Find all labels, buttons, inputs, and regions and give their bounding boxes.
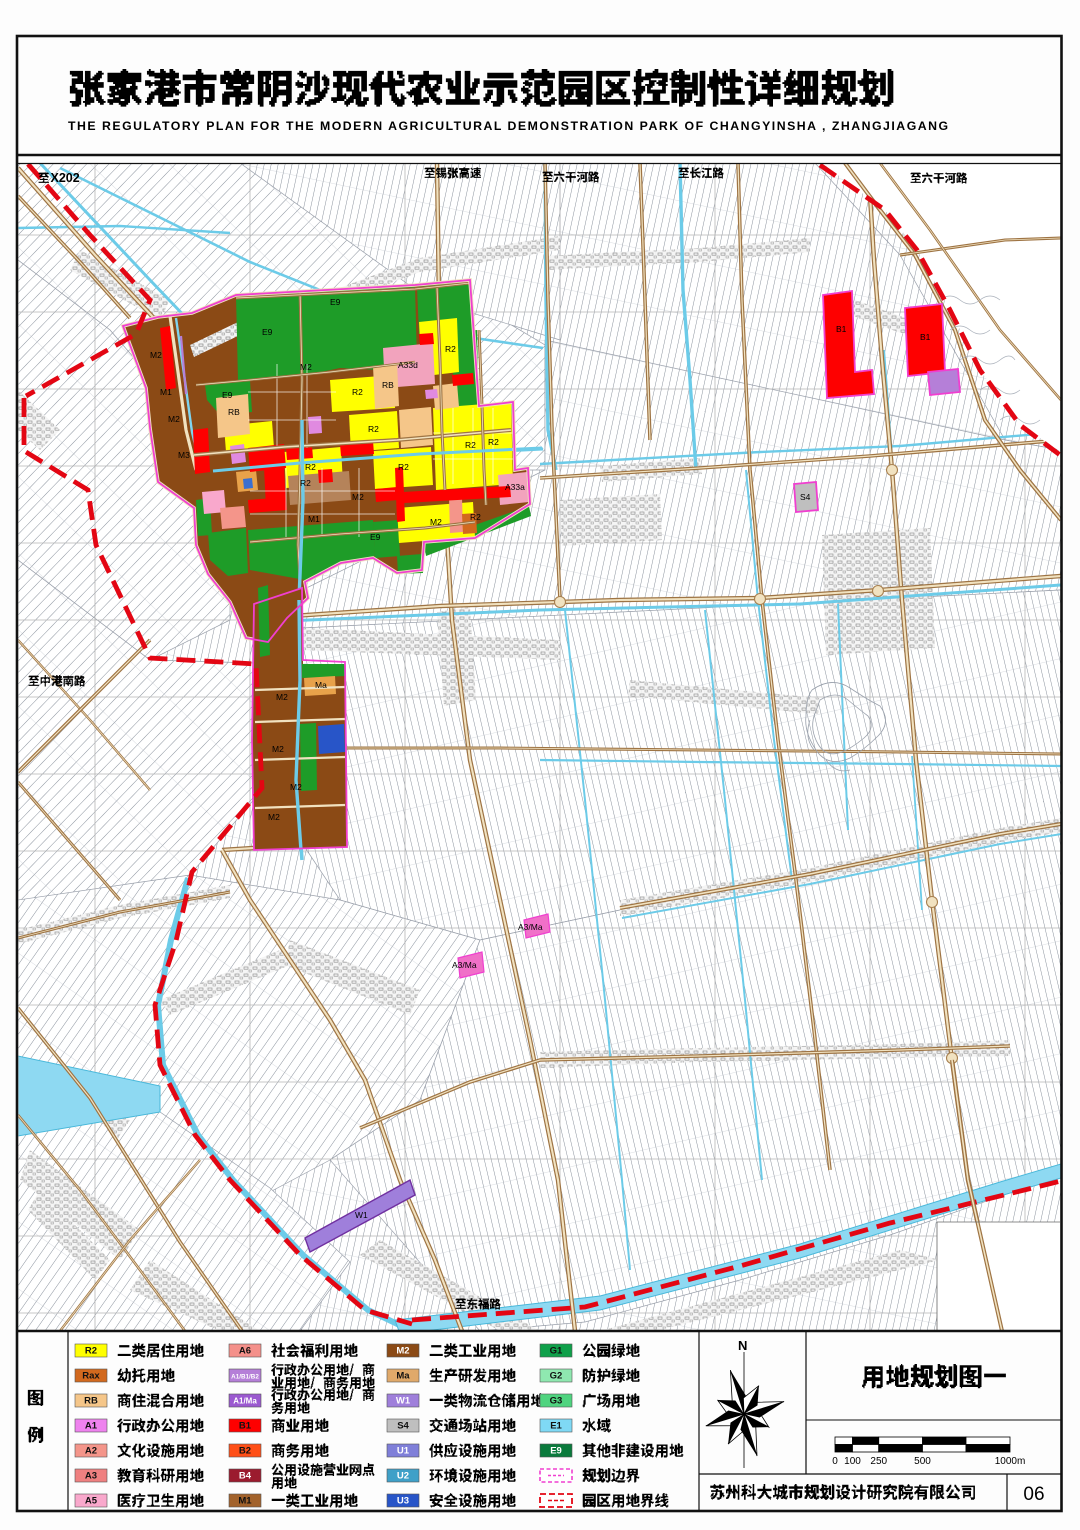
svg-text:E9: E9 <box>370 532 381 542</box>
svg-text:M2: M2 <box>430 517 442 527</box>
svg-text:RB: RB <box>84 1396 98 1407</box>
svg-text:A3: A3 <box>85 1471 97 1482</box>
svg-text:M2: M2 <box>168 414 180 424</box>
svg-text:A1/B1/B2: A1/B1/B2 <box>231 1374 259 1381</box>
svg-text:M2: M2 <box>268 812 280 822</box>
svg-text:R2: R2 <box>85 1346 97 1357</box>
svg-text:R2: R2 <box>305 462 316 472</box>
svg-text:A5: A5 <box>85 1496 98 1507</box>
svg-text:M1: M1 <box>160 387 172 397</box>
svg-text:R2: R2 <box>368 424 379 434</box>
svg-text:Ma: Ma <box>396 1371 410 1382</box>
svg-text:1000m: 1000m <box>995 1456 1026 1467</box>
svg-text:M2: M2 <box>352 492 364 502</box>
svg-text:N: N <box>738 1338 747 1353</box>
svg-text:A33d: A33d <box>398 360 418 370</box>
svg-text:B2: B2 <box>239 1446 251 1457</box>
svg-text:250: 250 <box>870 1456 887 1467</box>
svg-text:R2: R2 <box>488 437 499 447</box>
svg-text:B4: B4 <box>239 1471 252 1482</box>
svg-text:E9: E9 <box>262 327 273 337</box>
svg-text:Ma: Ma <box>315 680 327 690</box>
svg-text:A1: A1 <box>85 1421 98 1432</box>
svg-text:100: 100 <box>844 1456 861 1467</box>
svg-text:A33a: A33a <box>505 482 525 492</box>
svg-text:0: 0 <box>832 1456 838 1467</box>
svg-text:B1: B1 <box>239 1421 252 1432</box>
svg-text:E9: E9 <box>330 297 341 307</box>
svg-text:B1: B1 <box>836 324 847 334</box>
svg-text:S4: S4 <box>800 492 811 502</box>
svg-text:Rax: Rax <box>82 1371 100 1382</box>
svg-text:W1: W1 <box>355 1210 368 1220</box>
svg-text:A1/Ma: A1/Ma <box>233 1397 257 1406</box>
svg-text:R2: R2 <box>470 512 481 522</box>
svg-text:U2: U2 <box>397 1471 409 1482</box>
svg-text:THE REGULATORY PLAN FOR THE MO: THE REGULATORY PLAN FOR THE MODERN AGRIC… <box>68 119 950 133</box>
svg-text:M3: M3 <box>178 450 190 460</box>
svg-text:S4: S4 <box>397 1421 409 1432</box>
svg-text:M2: M2 <box>396 1346 409 1357</box>
svg-text:R2: R2 <box>300 478 311 488</box>
svg-text:G3: G3 <box>550 1396 563 1407</box>
svg-text:U1: U1 <box>397 1446 410 1457</box>
svg-text:A3/Ma: A3/Ma <box>518 922 543 932</box>
svg-text:06: 06 <box>1023 1484 1044 1505</box>
svg-text:M2: M2 <box>290 782 302 792</box>
svg-text:A6: A6 <box>239 1346 251 1357</box>
svg-text:B1: B1 <box>920 332 931 342</box>
svg-text:M1: M1 <box>308 514 320 524</box>
svg-text:RB: RB <box>228 407 240 417</box>
svg-text:M1: M1 <box>238 1496 252 1507</box>
svg-text:E1: E1 <box>550 1421 562 1432</box>
svg-text:A3/Ma: A3/Ma <box>452 960 477 970</box>
svg-text:G2: G2 <box>550 1371 563 1382</box>
svg-text:M2: M2 <box>276 692 288 702</box>
svg-text:R2: R2 <box>465 440 476 450</box>
svg-text:A2: A2 <box>85 1446 97 1457</box>
svg-text:RB: RB <box>382 380 394 390</box>
svg-text:M2: M2 <box>272 744 284 754</box>
svg-text:R2: R2 <box>398 462 409 472</box>
svg-text:G1: G1 <box>550 1346 563 1357</box>
svg-text:R2: R2 <box>352 387 363 397</box>
svg-text:W1: W1 <box>396 1396 411 1407</box>
svg-text:R2: R2 <box>445 344 456 354</box>
svg-text:X202: X202 <box>51 171 80 185</box>
svg-text:500: 500 <box>914 1456 931 1467</box>
svg-text:E9: E9 <box>550 1446 562 1457</box>
svg-text:M2: M2 <box>300 362 312 372</box>
svg-text:M2: M2 <box>150 350 162 360</box>
svg-text:U3: U3 <box>397 1496 409 1507</box>
svg-text:E9: E9 <box>222 390 233 400</box>
